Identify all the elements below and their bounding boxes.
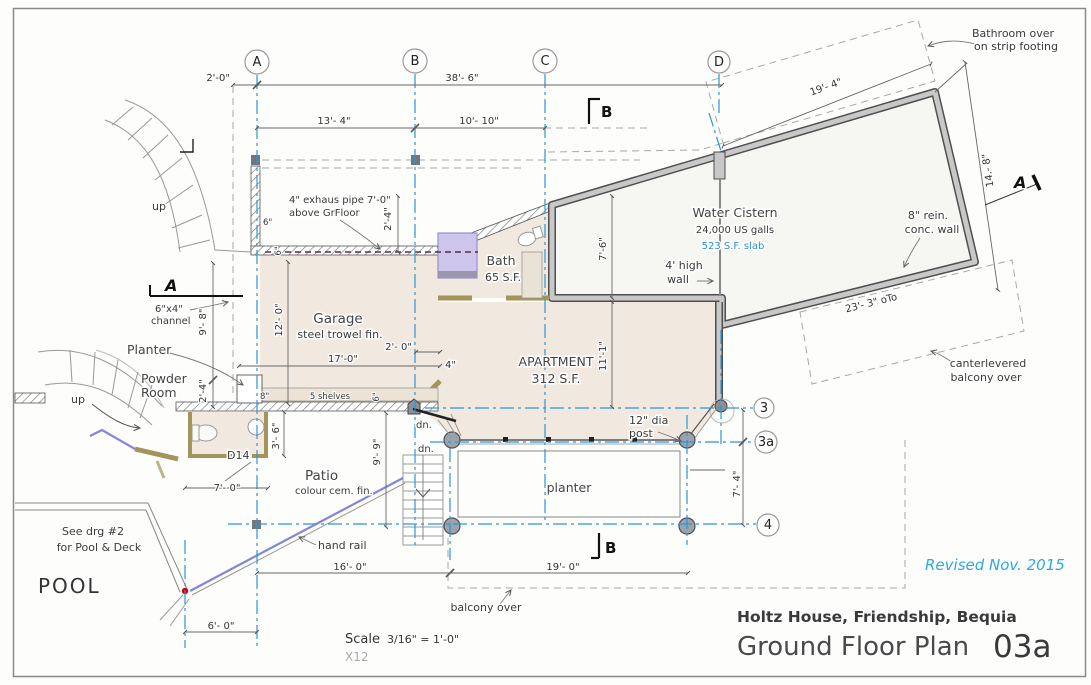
label-garage-finish: steel trowel fin. bbox=[297, 328, 382, 341]
section-b-top: B bbox=[601, 103, 612, 121]
note-balcony-over: balcony over bbox=[450, 601, 522, 614]
note-cantilever-2: balcony over bbox=[950, 371, 1022, 384]
section-a-right: A bbox=[1012, 173, 1026, 192]
dim-4: 4" bbox=[445, 360, 456, 371]
note-exhaust-2: above GrFloor bbox=[289, 208, 360, 219]
project-title: Holtz House, Friendship, Bequia bbox=[737, 608, 1017, 626]
post-12dia bbox=[444, 432, 460, 448]
cistern-wall-stub bbox=[714, 152, 725, 179]
dim-2-4-left: 2'-4" bbox=[198, 379, 209, 403]
dim-17-0: 17'-0" bbox=[328, 354, 358, 365]
note-bathroom-over-2: on strip footing bbox=[974, 40, 1058, 53]
sheet-title: Ground Floor Plan bbox=[737, 632, 969, 662]
dim-38-6: 38'- 6" bbox=[445, 73, 478, 84]
dim-2-0-garage: 2'- 0" bbox=[385, 342, 412, 353]
label-bath-area: 65 S.F. bbox=[485, 271, 521, 284]
label-up-bottom: up bbox=[71, 393, 85, 406]
label-dn-2: dn. bbox=[418, 444, 434, 455]
dim-12-0: 12'- 0" bbox=[274, 303, 285, 336]
dim-7-0: 7'- 0" bbox=[214, 483, 241, 494]
note-see-drg-2: for Pool & Deck bbox=[57, 541, 142, 554]
note-channel-2: channel bbox=[151, 316, 191, 327]
label-pool: POOL bbox=[38, 574, 101, 598]
grid-bubble-3: 3 bbox=[760, 401, 768, 416]
planter-box bbox=[237, 375, 262, 403]
vanity bbox=[522, 252, 542, 298]
scale-word: Scale bbox=[345, 632, 380, 647]
dim-19-0: 19'- 0" bbox=[546, 562, 579, 573]
dim-19-4: 19'- 4" bbox=[809, 77, 844, 99]
dim-16-0: 16'- 0" bbox=[333, 562, 366, 573]
dim-11-1: 11'-1" bbox=[598, 341, 609, 371]
grid-bubble-3a: 3a bbox=[758, 435, 774, 450]
dim-6-b: 6" bbox=[274, 246, 284, 255]
floor-plan-drawing: A B C D 3 3a 4 bbox=[0, 0, 1091, 685]
dim-2-4-pipe: 2'-4" bbox=[383, 207, 394, 231]
label-powder-2: Room bbox=[141, 385, 177, 400]
label-planter-upper: Planter bbox=[127, 342, 172, 357]
note-see-drg-1: See drg #2 bbox=[62, 525, 124, 538]
note-post-1: 12" dia bbox=[629, 414, 668, 427]
label-planter-lower: planter bbox=[547, 480, 593, 495]
dim-6-shelf: 6" bbox=[372, 392, 382, 401]
dim-14-8: 14.- 8" bbox=[981, 153, 997, 188]
dim-6-a: 6" bbox=[263, 218, 272, 228]
note-high-wall-1: 4' high bbox=[665, 259, 703, 272]
dim-3-6: 3'- 6" bbox=[271, 423, 282, 450]
label-cistern-slab: 523 S.F. slab bbox=[702, 241, 765, 252]
up-arrow-top bbox=[180, 139, 193, 152]
note-rein-wall-2: conc. wall bbox=[905, 223, 960, 236]
label-apartment: APARTMENT bbox=[519, 354, 594, 369]
post-a bbox=[251, 155, 260, 165]
label-apartment-area: 312 S.F. bbox=[532, 371, 581, 386]
note-post-2: post bbox=[629, 427, 653, 440]
dim-9-8: 9'- 8" bbox=[198, 309, 209, 336]
note-exhaust-1: 4" exhaus pipe 7'-0" bbox=[289, 195, 391, 206]
section-b-bottom: B bbox=[605, 539, 616, 557]
note-cantilever-1: canterlevered bbox=[950, 357, 1027, 370]
dim-7-4: 7'- 4" bbox=[732, 471, 743, 498]
section-a-left: A bbox=[163, 276, 177, 295]
note-high-wall-2: wall bbox=[667, 273, 689, 286]
dim-9-9: 9'- 9" bbox=[372, 439, 383, 466]
note-handrail: hand rail bbox=[318, 539, 367, 552]
label-bath: Bath bbox=[486, 253, 515, 268]
dim-13-4: 13'- 4" bbox=[317, 116, 350, 127]
floor-plan-sheet: A B C D 3 3a 4 bbox=[0, 0, 1091, 685]
label-up-top: up bbox=[152, 200, 166, 213]
grid-bubble-d: D bbox=[714, 55, 724, 70]
scale-value: 3/16" = 1'-0" bbox=[387, 633, 459, 646]
label-dn-1: dn. bbox=[416, 420, 432, 431]
label-patio-finish: colour cem. fin. bbox=[295, 486, 373, 497]
grid-bubble-4: 4 bbox=[764, 518, 772, 533]
watermark: X12 bbox=[345, 650, 369, 664]
label-d14: D14 bbox=[227, 449, 249, 462]
dim-2-0: 2'-0" bbox=[206, 73, 230, 84]
note-rein-wall-1: 8" rein. bbox=[908, 209, 948, 222]
label-patio: Patio bbox=[305, 468, 338, 484]
label-powder-1: Powder bbox=[141, 371, 188, 386]
note-bathroom-over-1: Bathroom over bbox=[972, 27, 1055, 40]
post-12dia bbox=[444, 518, 460, 534]
label-garage: Garage bbox=[313, 311, 362, 327]
sheet-number: 03a bbox=[993, 629, 1051, 665]
dim-6-0: 6'- 0" bbox=[208, 621, 235, 632]
grid-bubble-a: A bbox=[253, 55, 262, 70]
dim-8: 8" bbox=[260, 392, 269, 402]
note-shelves: 5 shelves bbox=[310, 392, 351, 402]
dim-7-6: 7'-6" bbox=[598, 237, 609, 261]
dim-10-10: 10'- 10" bbox=[459, 116, 499, 127]
label-cistern-capacity: 24,000 US galls bbox=[696, 225, 774, 236]
revised-date: Revised Nov. 2015 bbox=[925, 556, 1065, 574]
grid-bubble-c: C bbox=[540, 54, 549, 69]
grid-bubble-b: B bbox=[411, 54, 420, 69]
label-water-cistern: Water Cistern bbox=[692, 205, 777, 220]
note-channel-1: 6"x4" bbox=[155, 304, 183, 315]
up-arrow-bottom bbox=[92, 404, 140, 428]
sink-powder bbox=[248, 419, 264, 435]
